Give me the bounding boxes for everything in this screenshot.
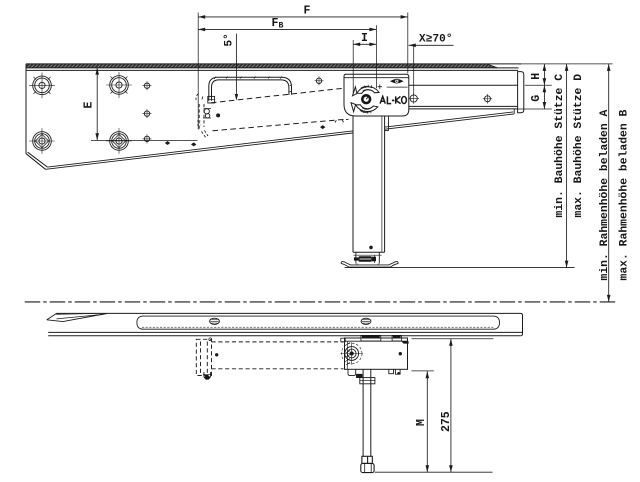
svg-text:B: B bbox=[279, 22, 284, 31]
svg-text:min. Rahmenhöhe beladen A: min. Rahmenhöhe beladen A bbox=[599, 109, 611, 280]
svg-text:E: E bbox=[83, 102, 96, 109]
svg-text:I: I bbox=[361, 32, 368, 45]
svg-text:H: H bbox=[530, 73, 543, 80]
svg-text:max. Bauhöhe Stütze D: max. Bauhöhe Stütze D bbox=[573, 74, 585, 218]
svg-text:275: 275 bbox=[440, 411, 453, 432]
svg-text:5°: 5° bbox=[224, 33, 236, 46]
svg-text:F: F bbox=[272, 17, 279, 30]
svg-text:min. Bauhöhe Stütze C: min. Bauhöhe Stütze C bbox=[554, 74, 566, 218]
svg-text:G: G bbox=[530, 95, 543, 102]
svg-text:F: F bbox=[304, 4, 311, 17]
svg-text:M: M bbox=[415, 419, 428, 426]
svg-text:max. Rahmenhöhe beladen B: max. Rahmenhöhe beladen B bbox=[618, 109, 630, 280]
svg-text:X≥70°: X≥70° bbox=[419, 34, 453, 46]
